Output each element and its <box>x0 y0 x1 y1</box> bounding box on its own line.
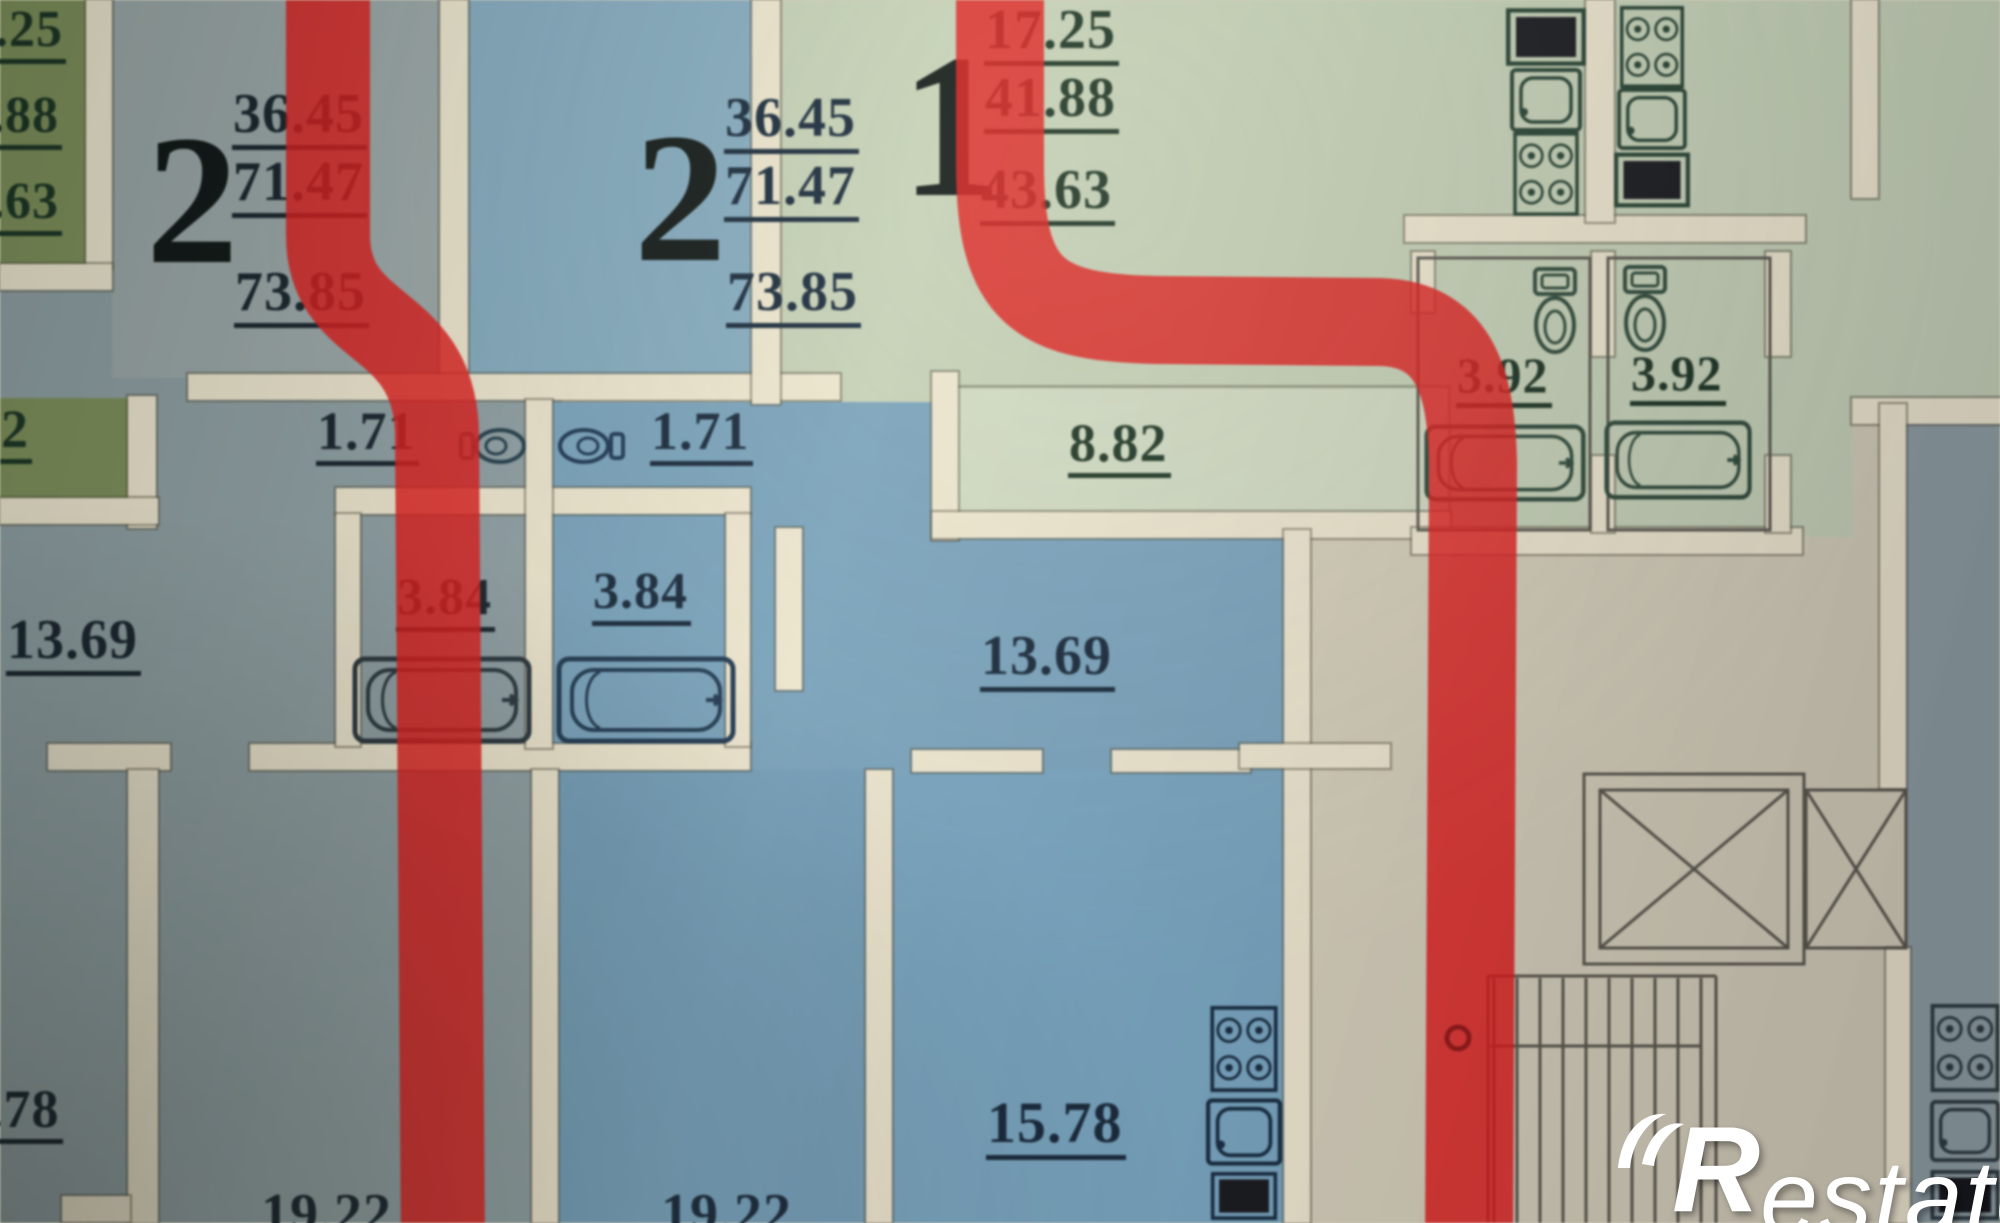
route-line <box>1000 0 1473 1223</box>
route-line <box>328 0 443 1223</box>
brand-watermark: R estate <box>1612 1118 2000 1223</box>
brand-letter: R <box>1672 1118 1760 1222</box>
floorplan-photo: .25 .88 .63 2 13.69 .78 2 36.45 71.47 73… <box>0 0 2000 1223</box>
floorplan: .25 .88 .63 2 13.69 .78 2 36.45 71.47 73… <box>0 0 2000 1223</box>
brand-text: estate <box>1760 1146 2000 1223</box>
route-overlay <box>0 0 2000 1223</box>
